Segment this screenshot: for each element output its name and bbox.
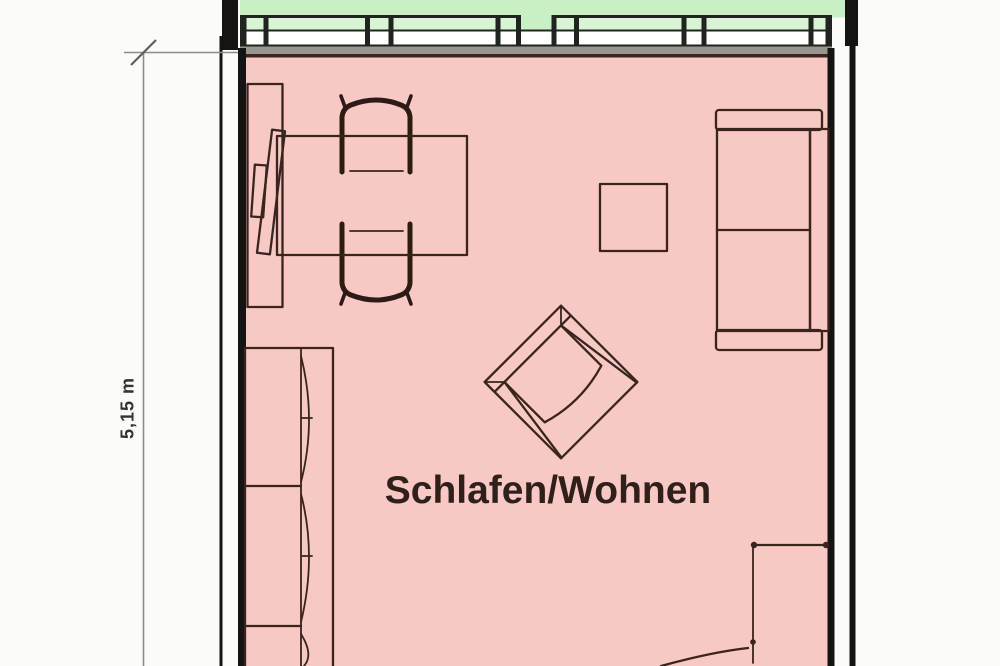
- room-top-wall-line: [240, 54, 832, 58]
- window-sill-band: [240, 47, 832, 55]
- floor-plan-drawing: [0, 0, 1000, 666]
- window-inner-band: [240, 32, 832, 45]
- left-wall-outer-line: [220, 36, 223, 666]
- balcony-door-gap: [521, 13, 552, 30]
- door-hinge-node: [750, 639, 756, 645]
- partition-node-left: [751, 542, 757, 548]
- left-wall-pier: [222, 0, 238, 50]
- right-wall-outer-line: [850, 38, 856, 666]
- window-frame-low-line: [240, 45, 832, 47]
- dimension-label: 5,15 m: [118, 377, 139, 439]
- partition-node-right: [823, 542, 829, 548]
- room-label: Schlafen/Wohnen: [385, 469, 711, 513]
- window-band: [240, 13, 832, 58]
- floor-plan-canvas: Schlafen/Wohnen 5,15 m: [0, 0, 1000, 666]
- window-frame-mid-line: [240, 30, 832, 32]
